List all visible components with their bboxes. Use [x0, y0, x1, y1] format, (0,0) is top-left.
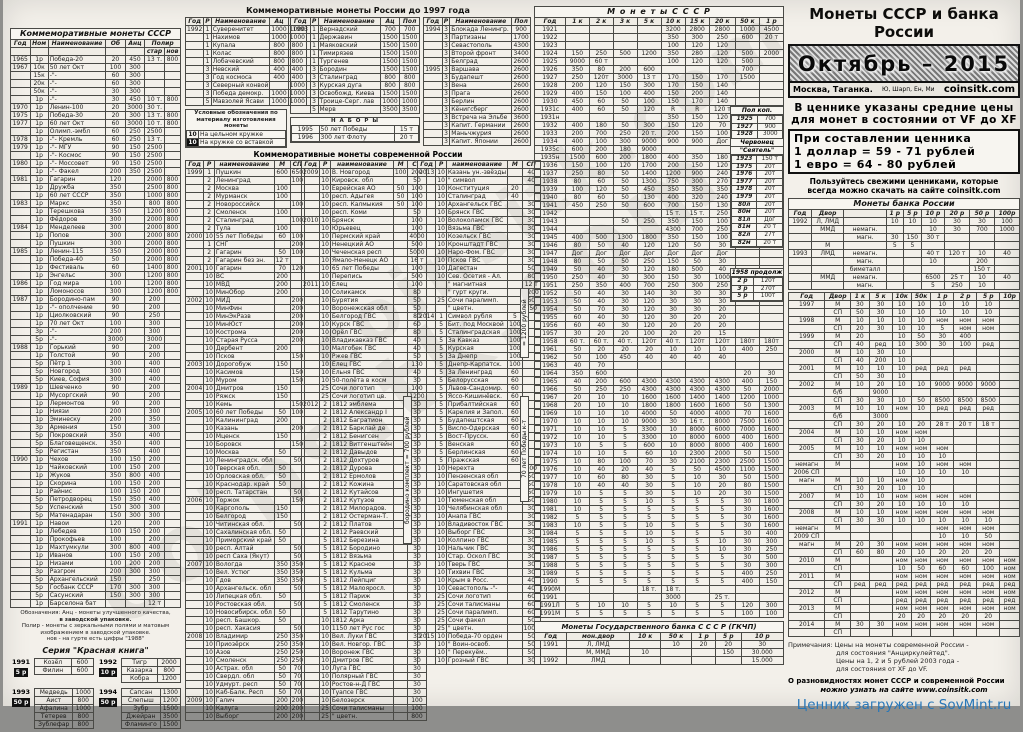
- table-row: 10Касимов150: [186, 368, 305, 376]
- table-row: 10Анапа ГВС30: [418, 512, 541, 520]
- note-line: Полир - монеты с зеркальными полями и ма…: [10, 623, 181, 630]
- table-row: 10Мценск150: [186, 432, 305, 440]
- modern-table-group1: ГодРнаименованиеМСП19991Пушкин6006502Лен…: [185, 160, 298, 721]
- red-book-denom-badge: 10 р: [99, 668, 118, 677]
- table-row: 10Боровск150: [186, 440, 305, 448]
- table-row: 10На кружке со вставкой: [187, 138, 286, 146]
- info-panel: Монеты СССР и банка России Октябрь – 201…: [788, 5, 1020, 713]
- table-row: 200610Торжок150: [186, 496, 305, 504]
- table-row: 200710Вологда350350: [186, 560, 305, 568]
- table-row: 51812 Вязьма30: [302, 552, 427, 560]
- note-line: для состояния от XF до VF.: [788, 665, 1020, 673]
- table-row: 2Тула100: [186, 224, 305, 232]
- table-row: 1927250120т300013 т1701501701500: [535, 74, 784, 82]
- gkchp-table: Годмон.двор10 к50 к1 р5 р10 р1991Л, ЛМД1…: [534, 632, 784, 665]
- table-row: 19682010101800180016001600501300: [535, 402, 784, 410]
- table-row: 197210105330010800060004001600: [535, 434, 784, 442]
- table-row: 200910В. Новгород100200: [302, 168, 427, 176]
- table-row: 10Ростовская обл.50: [186, 600, 305, 608]
- table-row: магнМ2030номномномномном: [789, 541, 1020, 549]
- legend-table: 10На цельном кружке10На кружке со вставк…: [186, 130, 286, 147]
- table-row: 1Тургенев15001500: [291, 58, 420, 66]
- table-row: 1Нахимов10001000: [186, 34, 307, 42]
- table-row: 10Воронеж ГВС30: [302, 648, 427, 656]
- table-row: 3Капит. Японии2600: [424, 138, 531, 146]
- table-row: 3Невский400400: [186, 66, 307, 74]
- table-row: 1990М18 т.18 т.: [535, 586, 784, 594]
- table-row: 10Краснодар. край50: [186, 480, 305, 488]
- table-row: 10Кировск. обл50: [302, 176, 427, 184]
- data-table: 2 р120т3 р270т5 р100т: [731, 277, 783, 301]
- table-row: 3Берлин2600: [424, 98, 531, 106]
- table-row: СП4020010: [789, 357, 1020, 365]
- about-line: О разновидностях монет СССР и современно…: [788, 677, 1020, 686]
- table-row: 5рУспенский150300300: [11, 504, 181, 512]
- table-row: 5рПётр 1300400: [11, 360, 181, 368]
- table-row: 3Сталинград800800: [291, 74, 420, 82]
- table-row: 19771р60 лет Окт60300010 т.800: [11, 120, 181, 128]
- table-row: 10Сталинград40: [418, 192, 541, 200]
- table-row: 51812 Смоленск30: [302, 600, 427, 608]
- table-row: " магнитная12 т: [418, 280, 541, 288]
- table-row: 10Волоколамск ГВС30: [418, 216, 541, 224]
- table-row: Казарка800: [122, 666, 181, 674]
- table-row: 19861рГод мира1001200800: [11, 280, 181, 288]
- sets-table: 199550 лет Победы15 т1996300 лет Флоту20…: [291, 125, 419, 142]
- table-row: М, ММД1015030.000: [535, 649, 784, 657]
- table-row: 10Дмитров ГВС30: [302, 656, 427, 664]
- scanned-coin-pricelist: { "watermark": "coinsitk.com", "left": {…: [0, 0, 1023, 710]
- table-row: 19625010045040404040: [535, 354, 784, 362]
- table-row: 25Сочи талисманы60: [418, 600, 541, 608]
- table-row: 5 р100т: [732, 293, 783, 301]
- red-book-table: Сапсан1300Слепыш1200Зубр1500Джейран3500Ф…: [121, 688, 181, 729]
- polkop-title: Пол коп.: [731, 107, 783, 115]
- table-row: 10Тверская обл.50: [186, 464, 305, 472]
- table-row: 1991Л, ЛМД10202030: [535, 641, 784, 649]
- table-row: 3Партизаны1700: [424, 34, 531, 42]
- table-row: 15к-"-60300: [11, 72, 181, 80]
- table-row: 10На цельном кружке: [187, 130, 286, 138]
- location-label: Москва, Таганка.: [793, 85, 873, 94]
- table-row: 25" цветн.800: [302, 712, 427, 720]
- table-row: СП40ред1030030100ред: [789, 341, 1020, 349]
- condition-line: В ценнике указаны средние цены: [788, 102, 1020, 114]
- table-row: 101812 Арка30: [302, 616, 427, 624]
- table-row: 10респ. Алтай50: [186, 544, 305, 552]
- table-row: 10Владикавказ ГВС40: [302, 336, 427, 344]
- table-row: 3Освобожд. Киева15001500: [291, 90, 420, 98]
- pre97-col-c: ГодРНаименованиеПол19943Блокада Ленингр.…: [423, 17, 531, 146]
- table-row: 3Встреча на Эльбе3600: [424, 114, 531, 122]
- legend-title: материалу изготовления монеты: [186, 117, 286, 130]
- table-row: 197720т: [732, 178, 783, 186]
- table-row: 101150 лет Рус гос30: [302, 624, 427, 632]
- table-row: 19943Блокада Ленингр.900: [424, 26, 531, 34]
- table-row: 1р70 лет Окт100300: [11, 320, 181, 328]
- table-row: 1998М10101010номномном: [789, 317, 1020, 325]
- table-row: 200210МИД200: [186, 296, 305, 304]
- table-row: 199550 лет Победы15 т: [292, 125, 419, 133]
- table-row: 1рПобеда-40502000800: [11, 256, 181, 264]
- table-row: 10МВД200: [186, 280, 305, 288]
- table-row: 10Казань200: [186, 424, 305, 432]
- table-row: 19634070: [535, 362, 784, 370]
- rates-title: При составлении ценника: [794, 132, 1014, 145]
- table-row: 10Гдов350350: [186, 576, 305, 584]
- table-row: 10респ. Башкор.50: [186, 616, 305, 624]
- table-row: 10Астрах. обл5070: [186, 664, 305, 672]
- table-row: 10Брянск ГВС30: [418, 208, 541, 216]
- table-row: 3Год космоса400400: [186, 74, 307, 82]
- table-row: СПредредредредредредредред: [789, 581, 1020, 589]
- table-row: 25Сочи паралимп.60: [418, 608, 541, 616]
- table-row: 1р-"- Факел2003502500: [11, 168, 181, 176]
- table-row: 1999М20105030400: [789, 333, 1020, 341]
- table-row: СП302010101010: [789, 501, 1020, 509]
- table-row: 81лДог: [732, 216, 783, 224]
- table-row: 1923100120120: [535, 42, 784, 50]
- red-book-table: Козёл600Филин600: [34, 658, 94, 677]
- table-row: 10респ. Хакасия50: [186, 624, 305, 632]
- note-line: для состояния "Анциркулейтед".: [788, 649, 1020, 657]
- table-row: 5р-"-30003000: [11, 336, 181, 344]
- table-row: 5рГосбанк СССР170300300: [11, 584, 181, 592]
- site-link[interactable]: coinsitk.com: [944, 84, 1015, 95]
- table-row: 5рПетродворец150350400: [11, 496, 181, 504]
- table-row: СП3020101010: [789, 453, 1020, 461]
- red-book-denom-badge: 50 р: [12, 698, 31, 707]
- red-book-year: 1992: [99, 658, 117, 666]
- prod1958-table: 2 р120т3 р270т5 р100т: [731, 277, 783, 301]
- table-row: 1р-"- ополчение90200: [11, 304, 181, 312]
- table-row: 10Туапсе ГВС30: [302, 688, 427, 696]
- table-row: 10МинЮст200: [186, 320, 305, 328]
- table-row: СП203010105номном: [789, 325, 1020, 333]
- table-row: 3Севастополь4300: [424, 42, 531, 50]
- month-banner: Октябрь – 2015: [788, 44, 1020, 83]
- table-row: 10Бурятия50: [302, 296, 427, 304]
- table-row: 10Орловская обл.50: [186, 472, 305, 480]
- table-row: 198555510551030300: [535, 538, 784, 546]
- table-row: 10Старая Русса200: [186, 336, 305, 344]
- table-row: 10" Воин-освоб.50: [418, 640, 541, 648]
- table-row: СП503010: [789, 373, 1020, 381]
- note-line: нов - на гурте есть цифры "1988": [10, 636, 181, 643]
- about-varieties-note: О разновидностях монет СССР и современно…: [788, 677, 1020, 694]
- about-site-link[interactable]: можно узнать на сайте www.coinsitk.com: [788, 686, 1020, 695]
- table-row: 1956604030120202020: [535, 322, 784, 330]
- table-row: 197820т: [732, 186, 783, 194]
- table-row: 82м20 т: [732, 239, 783, 247]
- ussr-coins-title: М о н е т ы С С С Р: [534, 6, 784, 17]
- table-row: 1065 лет Победы100: [302, 264, 427, 272]
- table-row: 19953Варшава2600: [424, 66, 531, 74]
- table-row: 10респ. Коми50: [302, 208, 427, 216]
- data-table: Сапсан1300Слепыш1200Зубр1500Джейран3500Ф…: [121, 688, 181, 729]
- table-row: 19931Вернадский700700: [291, 26, 420, 34]
- table-row: 10Белозерск100: [302, 696, 427, 704]
- table-row: 1р-"- Космос901502500: [11, 152, 181, 160]
- table-row: 2007М1010номномномном: [789, 493, 1020, 501]
- table-row: 10Чеченская респ5000: [302, 248, 427, 256]
- table-row: 1992ЛМД15.000: [535, 657, 784, 665]
- table-row: 80л20т: [732, 201, 783, 209]
- table-row: 5Мерв35003500: [291, 106, 420, 114]
- table-row: б/б9000: [789, 389, 1020, 397]
- table-row: 51812 Малояросл.30: [302, 584, 427, 592]
- table-row: 19643506002030: [535, 370, 784, 378]
- table-row: 201110Елец100: [302, 280, 427, 288]
- table-row: 200810Владимир250350: [186, 632, 305, 640]
- data-table: ГодДвор1 к5 к10к50к1 р2 р5 р10р1997М3030…: [788, 292, 1020, 637]
- table-row: 19865555551030250: [535, 546, 784, 554]
- table-row: 10Севастополь -"-40: [418, 584, 541, 592]
- prod1958-box: 1958 продолж 2 р120т3 р270т5 р100т: [730, 268, 784, 302]
- table-row: 2010Мномномномномномном: [789, 557, 1020, 565]
- table-row: 1971101053300108000600070001600: [535, 426, 784, 434]
- table-row: 5рБлаговещенск.350400: [11, 440, 181, 448]
- table-row: 1рСкорина100150200: [11, 480, 181, 488]
- bank-russia-table-1997: ГодДвор1 к5 к10к50к1 р2 р5 р10р1997М3030…: [788, 292, 1020, 637]
- table-row: 10Смоленск250250: [186, 656, 305, 664]
- panel-title: Монеты СССР и банка России: [788, 5, 1020, 41]
- table-row: 200110Гагарин70120: [186, 264, 305, 272]
- table-row: СП50301010101010: [789, 309, 1020, 317]
- table-row: 2012Мномномномномномном: [789, 589, 1020, 597]
- table-row: 25Сочи логотип100: [302, 384, 427, 392]
- table-row: 201010Брянск100: [302, 216, 427, 224]
- table-row: 1рТолстой90200: [11, 352, 181, 360]
- table-row: 1988555555530300: [535, 562, 784, 570]
- table-row: 10Ленинградск. обл50: [186, 456, 305, 464]
- chervonets-box: Червонец "Сеятель" 1923150 т197520т19762…: [730, 138, 784, 248]
- month-label: Октябрь – 2015: [798, 52, 1010, 76]
- table-row: 10Воронежская обл50: [302, 304, 427, 312]
- table-row: СП60802010202020: [789, 549, 1020, 557]
- chervonets-table: 1923150 т197520т197620т197720т197820т197…: [731, 155, 783, 247]
- red-book-table: Медведь1000Аист800Афалина1000Тетерев800З…: [34, 688, 94, 729]
- red-book-year: 1993: [12, 688, 30, 696]
- table-row: 1996300 лет Флоту20 т: [292, 133, 419, 141]
- table-row: 2Гагарин50100: [186, 248, 305, 256]
- note-line: Примечания: Цены на монеты современной Р…: [788, 641, 1020, 649]
- table-row: 1955604030120302020: [535, 314, 784, 322]
- table-row: 10Соликамск80: [302, 288, 427, 296]
- table-row: 5рНовгород300400: [11, 368, 181, 376]
- table-row: 10респ Саха (Якут)50: [186, 552, 305, 560]
- table-row: 3Северный конвой1000: [186, 82, 307, 90]
- table-row: 1997М30301010101010: [789, 301, 1020, 309]
- table-row: 10Ямало-Ненецк АО16 т: [302, 256, 427, 264]
- table-row: 2013Мномномномномномном: [789, 605, 1020, 613]
- table-row: 1Купала800800: [186, 42, 307, 50]
- table-row: ММДнемагн.10307001000: [789, 226, 1020, 234]
- table-row: 10Калуга200200: [186, 704, 305, 712]
- table-row: 10Ельня ГВС40: [302, 368, 427, 376]
- table-row: 10Крым в Росс.40: [418, 576, 541, 584]
- table-row: 1рНиязи200300: [11, 408, 181, 416]
- table-row: 5рПокровский350400: [11, 432, 181, 440]
- table-row: 1Державин15001500: [291, 34, 420, 42]
- table-row: 195860 т.60 т.40 т.120т40 т.120т120т180т…: [535, 338, 784, 346]
- data-table: ГодРНаименованиеПол19943Блокада Ленингр.…: [423, 17, 531, 146]
- red-book-denom-badge: 50 р: [99, 698, 118, 707]
- table-row: Тетерев800: [35, 712, 94, 720]
- table-row: 200910Галич200200: [186, 696, 305, 704]
- table-row: 197010101090003016 т.800075001600: [535, 418, 784, 426]
- table-row: 25" цветн.1000: [418, 624, 541, 632]
- table-row: 1993ЛМДнемагн.40 т120 т1040: [789, 250, 1020, 258]
- table-row: 10Вел. Устюг350350: [186, 568, 305, 576]
- table-row: 5Мавзолей Ясави10001000: [186, 98, 307, 106]
- table-row: 10Читинская обл.50: [186, 520, 305, 528]
- table-row: Тигр2000: [122, 658, 181, 666]
- page: coinsitk.com coinsitk.com Коммеморативны…: [3, 0, 1020, 706]
- table-row: 1рТерешкова3501200800: [11, 208, 181, 216]
- data-table: Годмон.двор10 к50 к1 р5 р10 р1991Л, ЛМД1…: [534, 632, 784, 665]
- table-row: 192132002800280010004500: [535, 26, 784, 34]
- table-row: 1Колас800800: [186, 50, 307, 58]
- table-row: 1992Л, ЛМД1010103030100: [789, 218, 1020, 226]
- table-row: 2 р120т: [732, 278, 783, 286]
- table-row: 1923150 т: [732, 156, 783, 164]
- table-row: 2006 СП10101010: [789, 469, 1020, 477]
- pre97-title: Коммеморативные монеты России до 1997 го…: [185, 6, 531, 16]
- table-row: 25Сочи факел50: [418, 616, 541, 624]
- condition-note: В ценнике указаны средние цены для монет…: [788, 102, 1020, 126]
- sovmint-footer-link[interactable]: Ценник загружен с SovMint.ru: [788, 697, 1020, 713]
- table-row: 10Калининград200: [186, 416, 305, 424]
- table-row: 10Елец ГВС130: [302, 360, 427, 368]
- table-row: 2009 СП101050: [789, 533, 1020, 541]
- table-row: 80м20т: [732, 209, 783, 217]
- table-row: 200410Дмитров150: [186, 384, 305, 392]
- table-row: 5рСасунский150300300: [11, 592, 181, 600]
- chervonets-title: Червонец: [731, 139, 783, 147]
- codes-label: Ю, Шарп, Ен, Ми: [882, 86, 935, 93]
- left-notes: Обозначения: Анц - монеты улучшенного ка…: [10, 610, 181, 643]
- table-row: 3Будапешт2600: [424, 74, 531, 82]
- table-row: 196910101040005040004000701600: [535, 410, 784, 418]
- table-row: 19851рЛенин-1153502000800: [11, 248, 181, 256]
- data-table: ГодДвор1 р5 р10 р20 р50 р100р1992Л, ЛМД1…: [788, 209, 1020, 290]
- table-row: 10Приморский край50: [186, 536, 305, 544]
- table-row: Зубр1500: [122, 704, 181, 712]
- table-row: 10респ. Адыгея50100: [302, 192, 427, 200]
- right-notes: Примечания: Цены на монеты современной Р…: [788, 641, 1020, 673]
- table-row: 10Наро-Фом. ГВС30: [418, 248, 541, 256]
- table-row: СП30201010: [789, 485, 1020, 493]
- table-row: 3 р270т: [732, 285, 783, 293]
- table-row: 10" Перекуём..50: [418, 648, 541, 656]
- table-row: 10Выборг ГВС30: [418, 528, 541, 536]
- table-row: 3Троице-Серг. лав10001000: [291, 98, 420, 106]
- table-row: 1947ДогДогДогДогДогДогДог: [535, 250, 784, 258]
- table-row: 19911рНавои120200: [11, 520, 181, 528]
- table-row: 82л27т: [732, 231, 783, 239]
- table-row: 3Вена2600: [424, 82, 531, 90]
- table-row: 1рРайнис100150200: [11, 488, 181, 496]
- table-row: 19791р-"- МГУ901502500: [11, 144, 181, 152]
- table-row: Медведь1000: [35, 688, 94, 696]
- red-book-block-1994: 199450 р Сапсан1300Слепыш1200Зубр1500Дже…: [97, 688, 181, 729]
- table-row: 10МинЭкРазв200: [186, 312, 305, 320]
- table-row: 10Муром150: [186, 376, 305, 384]
- table-row: 10Луга ГВС30: [302, 664, 427, 672]
- table-row: 1р60 лет СССР3501000800: [11, 192, 181, 200]
- polkop-box: Пол коп. 1925700192790019283000: [730, 106, 784, 140]
- table-row: 10Владивосток ГВС30: [418, 520, 541, 528]
- table-row: 197910553051020301500: [535, 490, 784, 498]
- table-row: 201310Казань ун.-звёзды40: [418, 168, 541, 176]
- table-row: 3р-"-200300: [11, 328, 181, 336]
- table-row: 3Прага2600: [424, 90, 531, 98]
- pre97-table-1994-95: ГодРНаименованиеПол19943Блокада Ленингр.…: [423, 17, 531, 146]
- table-row: 2008М1010номномномномном: [789, 509, 1020, 517]
- table-row: 10Козельск ГВС30: [418, 232, 541, 240]
- table-row: Сапсан1300: [122, 688, 181, 696]
- table-row: 1рПрокофьев100200: [11, 536, 181, 544]
- table-row: 197920т: [732, 193, 783, 201]
- fresh-line: Пользуйтесь свежими ценниками, которые: [788, 177, 1020, 186]
- table-row: 19921Суверенитет10001000: [186, 26, 307, 34]
- table-row: 1957302020100202015: [535, 330, 784, 338]
- note-line: Обозначения: Анц - монеты улучшенного ка…: [10, 610, 181, 617]
- pre97-col-b: ГодРНаименованиеАцПол19931Вернадский7007…: [290, 17, 420, 143]
- table-row: 20001055 лет Победы60100: [186, 232, 305, 240]
- table-row: 2Гагарин без зн.12 т: [186, 256, 305, 264]
- table-row: 19304506050100150170140: [535, 98, 784, 106]
- table-row: 3рРазгром200300300: [11, 568, 181, 576]
- table-row: 19781040403051020801500: [535, 482, 784, 490]
- table-row: 1973105560010800080004001600: [535, 442, 784, 450]
- eur-rate: 1 евро = 64 - 80 рублей: [794, 158, 1014, 171]
- note-line: Цены на 1, 2 и 5 рублей 2003 года -: [788, 657, 1020, 665]
- table-row: 1рЖуков350800400: [11, 472, 181, 480]
- data-table: Тигр2000Казарка800Кобра1200: [121, 658, 181, 683]
- table-row: 3Капит. Германии2600: [424, 122, 531, 130]
- table-row: 10Кемь150: [186, 400, 305, 408]
- table-row: 10Приозёрск250350: [186, 640, 305, 648]
- table-row: 19901рЧехов100150200: [11, 456, 181, 464]
- table-row: 1983105510555301600: [535, 522, 784, 530]
- table-row: 10Удмурт. респ5070: [186, 680, 305, 688]
- table-row: 25Сочи логотип60: [418, 592, 541, 600]
- table-row: СП2020202020: [789, 613, 1020, 621]
- table-row: 10Белгород ГВС80: [302, 312, 427, 320]
- table-row: 200310Дорогобуж150: [186, 360, 305, 368]
- table-row: 10Тверь ГВС30: [418, 560, 541, 568]
- sets-box: Н А Б О Р Ы 199550 лет Победы15 т1996300…: [290, 117, 420, 143]
- table-row: 1рМусоргский90200: [11, 392, 181, 400]
- data-table: ГодНомНаименованиеОбАнцПолирстарнов19651…: [10, 39, 181, 608]
- table-row: 19845551055530400: [535, 530, 784, 538]
- data-table: ГодРНаименованиеАцПол19921Суверенитет100…: [185, 17, 307, 106]
- table-row: 197610402040550450011001500: [535, 466, 784, 474]
- table-row: 1рЛермонтов90200: [11, 400, 181, 408]
- table-row: 10Псков150: [186, 352, 305, 360]
- ussr-coins-section: М о н е т ы С С С Р Год1 к2 к3 к5 к10 к1…: [534, 6, 784, 665]
- fresh-line: всегда можно скачать на сайте coinsitk.c…: [788, 186, 1020, 195]
- table-row: Джейран3500: [122, 712, 181, 720]
- table-row: Филин600: [35, 666, 94, 674]
- table-row: 2011Мномномномномномном: [789, 573, 1020, 581]
- table-row: 197620т: [732, 171, 783, 179]
- red-book-year: 1991: [12, 658, 30, 666]
- table-row: 1Тимирязев15001500: [291, 50, 420, 58]
- usd-rate: 1 доллар = 59 - 71 рублей: [794, 145, 1014, 158]
